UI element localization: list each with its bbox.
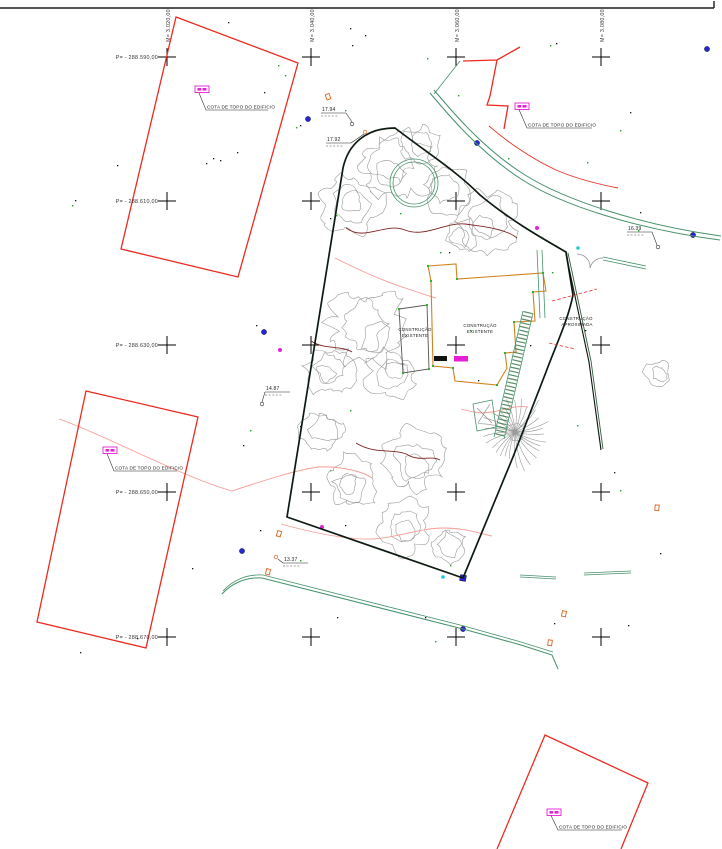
- tree-canopy-inner: [367, 137, 413, 182]
- survey-dot-black: [337, 617, 338, 618]
- measurement-value: 14.87: [266, 386, 280, 392]
- gate-swing: [577, 254, 603, 268]
- measurement-value: 17.92: [327, 137, 341, 143]
- survey-dot-black: [350, 28, 351, 29]
- construcao-existente-annex: CONSTRUÇÃO: [398, 327, 432, 332]
- survey-dot-black: [192, 568, 193, 569]
- survey-dot-green: [300, 560, 301, 561]
- wall-tick: [428, 368, 430, 370]
- tree: [431, 530, 466, 565]
- wall-tick: [398, 308, 400, 310]
- road-lower: [222, 578, 558, 669]
- grid-coordinate-labels: P= - 288.590,00 P= - 288.610,00 P= - 288…: [116, 9, 606, 641]
- fence-green: [434, 61, 460, 94]
- green-wall: [537, 250, 545, 318]
- wall-tick: [427, 265, 429, 267]
- survey-dot-green: [587, 162, 588, 163]
- parcel-left: [37, 391, 198, 648]
- tree: [363, 347, 416, 400]
- survey-dot-green: [72, 205, 73, 206]
- site-plan-drawing: COTA DE TOPO DO EDIFICIO COTA DE TOPO DO…: [0, 0, 722, 849]
- construcao-aproximada: APROXIMADA: [561, 322, 592, 327]
- fence-lines: [311, 224, 517, 460]
- measurement-value: 16.39: [628, 226, 642, 232]
- survey-marker-cyan: [441, 575, 445, 579]
- road-curb-line: [489, 126, 618, 188]
- tree-canopy: [376, 496, 429, 559]
- survey-marker-blue: [305, 116, 310, 121]
- wall-tick: [402, 372, 404, 374]
- survey-dot-black: [660, 553, 661, 554]
- survey-dot-green: [440, 252, 441, 253]
- grid-crosshair: [592, 628, 610, 646]
- construcao-aproximada: CONSTRUÇÃO: [559, 316, 593, 321]
- utility-symbol-orange: [562, 611, 567, 617]
- survey-dot-green: [278, 65, 279, 66]
- survey-dot-black: [556, 43, 557, 44]
- approx-construction-wall: [549, 253, 603, 450]
- survey-dot-green: [400, 213, 401, 214]
- survey-dot-green: [296, 127, 297, 128]
- contour-lines: [59, 258, 528, 539]
- survey-dot-black: [264, 92, 265, 93]
- measurement-value: 17.94: [322, 107, 336, 113]
- survey-marker-magenta: [535, 226, 539, 230]
- m-coordinate-label: M= 3.020,00: [166, 9, 172, 42]
- construcao-existente-annex: EXISTENTE: [402, 333, 428, 338]
- tree-canopy-inner: [342, 190, 361, 211]
- elevation-label-3: COTA DE TOPO DO EDIFICIO: [103, 447, 183, 471]
- tree-canopy: [318, 172, 387, 237]
- survey-dot-black: [243, 445, 244, 446]
- survey-dot-black: [554, 623, 555, 624]
- measurement-17-94: 17.94: [321, 107, 354, 126]
- grid-crosshair: [592, 336, 610, 354]
- survey-dot-black: [530, 345, 531, 346]
- elevation-tag-box: [103, 447, 117, 454]
- survey-dot-green: [620, 130, 621, 131]
- survey-dot-black: [330, 218, 331, 219]
- survey-dot-green: [345, 110, 346, 111]
- survey-dot-black: [237, 152, 238, 153]
- grid-crosshair: [158, 628, 176, 646]
- survey-dot-black: [365, 35, 366, 36]
- survey-dot-green: [250, 430, 251, 431]
- elevation-tag-box: [547, 809, 561, 816]
- survey-dot-black: [220, 160, 221, 161]
- survey-marker-blue: [261, 329, 266, 334]
- survey-dot-green: [285, 75, 286, 76]
- tree: [297, 413, 345, 451]
- grid-crosshair: [158, 336, 176, 354]
- p-coordinate-label: P= - 288.630,00: [116, 343, 158, 349]
- survey-marker-blue: [474, 140, 479, 145]
- survey-dot-green: [620, 490, 621, 491]
- survey-marker-blue: [704, 46, 709, 51]
- tree-canopy: [363, 347, 416, 400]
- p-coordinate-label: P= - 288.590,00: [116, 55, 158, 61]
- grid-crosshair: [592, 48, 610, 66]
- survey-dot-green: [458, 95, 459, 96]
- tree-canopy-inner: [317, 366, 337, 384]
- p-coordinate-label: P= - 288.610,00: [116, 199, 158, 205]
- elevation-tag-box: [195, 86, 209, 93]
- grid-crosshair: [302, 483, 320, 501]
- grid-crosshair: [158, 483, 176, 501]
- survey-dot-black: [300, 125, 301, 126]
- survey-dot-black: [228, 22, 229, 23]
- survey-dot-black: [425, 617, 426, 618]
- measurement-14-87: 14.87: [260, 386, 290, 406]
- grid-crosshair: [447, 192, 465, 210]
- tree: [376, 496, 429, 559]
- fence-right-of-gate: [603, 257, 646, 269]
- survey-dot-black: [206, 163, 207, 164]
- survey-marker-cyan: [576, 246, 580, 250]
- survey-dot-green: [552, 272, 553, 273]
- survey-dot-green: [550, 45, 551, 46]
- survey-dot-black: [256, 325, 257, 326]
- utility-symbol-orange: [265, 569, 270, 575]
- tree: [642, 360, 669, 386]
- wall-tick: [432, 365, 434, 367]
- survey-dot-black: [80, 652, 81, 653]
- parcel-top-right: [463, 47, 520, 129]
- measurement-16-39: 16.39: [627, 226, 660, 249]
- tree-canopy-inner: [332, 473, 366, 503]
- m-coordinate-label: M= 3.040,00: [310, 9, 316, 42]
- utility-symbol-orange: [325, 93, 331, 100]
- elevation-tag-box: [515, 103, 529, 110]
- stairs-ramp: [473, 250, 545, 439]
- wall-tick: [513, 321, 515, 323]
- cad-site-plan-sheet: COTA DE TOPO DO EDIFICIO COTA DE TOPO DO…: [0, 0, 722, 849]
- sheet-border-line: [0, 1, 714, 8]
- tree-ring: [390, 159, 438, 207]
- utility-symbol-orange: [276, 531, 281, 537]
- neighbour-parcels: [37, 17, 648, 849]
- tree: [454, 188, 518, 255]
- wall-tick: [426, 304, 428, 306]
- road-upper-edge: [434, 90, 721, 236]
- survey-dot-black: [213, 158, 214, 159]
- survey-dot-green: [508, 158, 509, 159]
- tree-canopy: [454, 188, 518, 255]
- tree-canopy-inner: [429, 175, 459, 204]
- utility-symbol-orange: [548, 640, 553, 646]
- wall-tick: [532, 291, 534, 293]
- survey-marker-blue: [690, 232, 695, 237]
- p-coordinate-label: P= - 288.650,00: [116, 490, 158, 496]
- grid-crosshair: [302, 336, 320, 354]
- tree-canopy: [431, 530, 466, 565]
- grid-crosshair: [447, 48, 465, 66]
- wall-tick: [452, 367, 454, 369]
- cota-label: COTA DE TOPO DO EDIFICIO: [207, 105, 275, 110]
- tree: [327, 452, 377, 505]
- tree: [424, 167, 471, 215]
- survey-dot-black: [585, 330, 586, 331]
- trees-layer: [297, 124, 669, 565]
- wall-tick: [456, 278, 458, 280]
- survey-dot-green: [350, 410, 351, 411]
- tree-canopy-inner: [653, 366, 668, 382]
- measurement-value: 13.37: [284, 557, 298, 563]
- survey-dot-black: [260, 530, 261, 531]
- grid-crosshair: [302, 628, 320, 646]
- wall-tick: [504, 352, 506, 354]
- palm-fronds: [478, 399, 548, 471]
- tree-canopy: [424, 167, 471, 215]
- utility-symbol-orange: [655, 505, 659, 511]
- point-id-box-black: [434, 356, 447, 361]
- survey-dot-green: [427, 58, 428, 59]
- tree-canopy-inner: [449, 228, 469, 248]
- cota-label: COTA DE TOPO DO EDIFICIO: [115, 466, 183, 471]
- survey-dot-black: [630, 112, 631, 113]
- survey-dot-black: [449, 252, 450, 253]
- survey-grid-layer: [158, 48, 610, 646]
- m-coordinate-label: M= 3.060,00: [455, 9, 461, 42]
- measurement-13-37: 13.37: [274, 555, 308, 566]
- grid-crosshair: [158, 192, 176, 210]
- survey-dot-green: [577, 425, 578, 426]
- point-id-box-magenta: [454, 356, 468, 362]
- grid-crosshair: [592, 483, 610, 501]
- survey-dot-black: [628, 625, 629, 626]
- tree-canopy: [297, 413, 345, 451]
- construcao-existente-main: CONSTRUÇÃO: [463, 323, 497, 328]
- elevation-label-4: COTA DE TOPO DO EDIFICIO: [547, 809, 627, 830]
- survey-dot-black: [478, 380, 479, 381]
- wall-tick: [496, 384, 498, 386]
- tree-palm: [478, 399, 548, 471]
- survey-marker-magenta: [278, 348, 282, 352]
- survey-dot-black: [345, 525, 346, 526]
- grid-crosshair: [447, 483, 465, 501]
- survey-dot-black: [640, 212, 641, 213]
- survey-dot-black: [75, 200, 76, 201]
- parcel-bottom-right: [497, 735, 648, 849]
- tree-canopy-inner: [391, 511, 421, 542]
- tree: [318, 172, 387, 237]
- cota-label: COTA DE TOPO DO EDIFICIO: [528, 123, 596, 128]
- survey-dot-black: [614, 472, 615, 473]
- survey-dot-black: [352, 45, 353, 46]
- building-annex: [399, 305, 429, 373]
- survey-marker-blue: [239, 548, 244, 553]
- elevation-label-1: COTA DE TOPO DO EDIFICIO: [195, 86, 275, 110]
- grid-crosshair: [302, 48, 320, 66]
- cota-label: COTA DE TOPO DO EDIFICIO: [559, 825, 627, 830]
- tree-canopy-inner: [342, 298, 390, 352]
- wall-tick: [430, 280, 432, 282]
- grid-crosshair: [447, 336, 465, 354]
- p-coordinate-label: P= - 288.670,00: [116, 635, 158, 641]
- tree-canopy-inner: [307, 414, 337, 441]
- tree-canopy: [327, 452, 377, 505]
- construcao-existente-main: EXISTENTE: [467, 329, 493, 334]
- survey-dot-black: [117, 165, 118, 166]
- wall-with-gap: [520, 571, 631, 579]
- elevation-label-2: COTA DE TOPO DO EDIFICIO: [515, 103, 596, 128]
- m-coordinate-label: M= 3.080,00: [600, 9, 606, 42]
- survey-points-layer: [72, 22, 710, 653]
- grid-crosshair: [592, 192, 610, 210]
- survey-dot-green: [435, 641, 436, 642]
- grid-crosshair: [302, 192, 320, 210]
- road-upper-edge: [430, 93, 720, 240]
